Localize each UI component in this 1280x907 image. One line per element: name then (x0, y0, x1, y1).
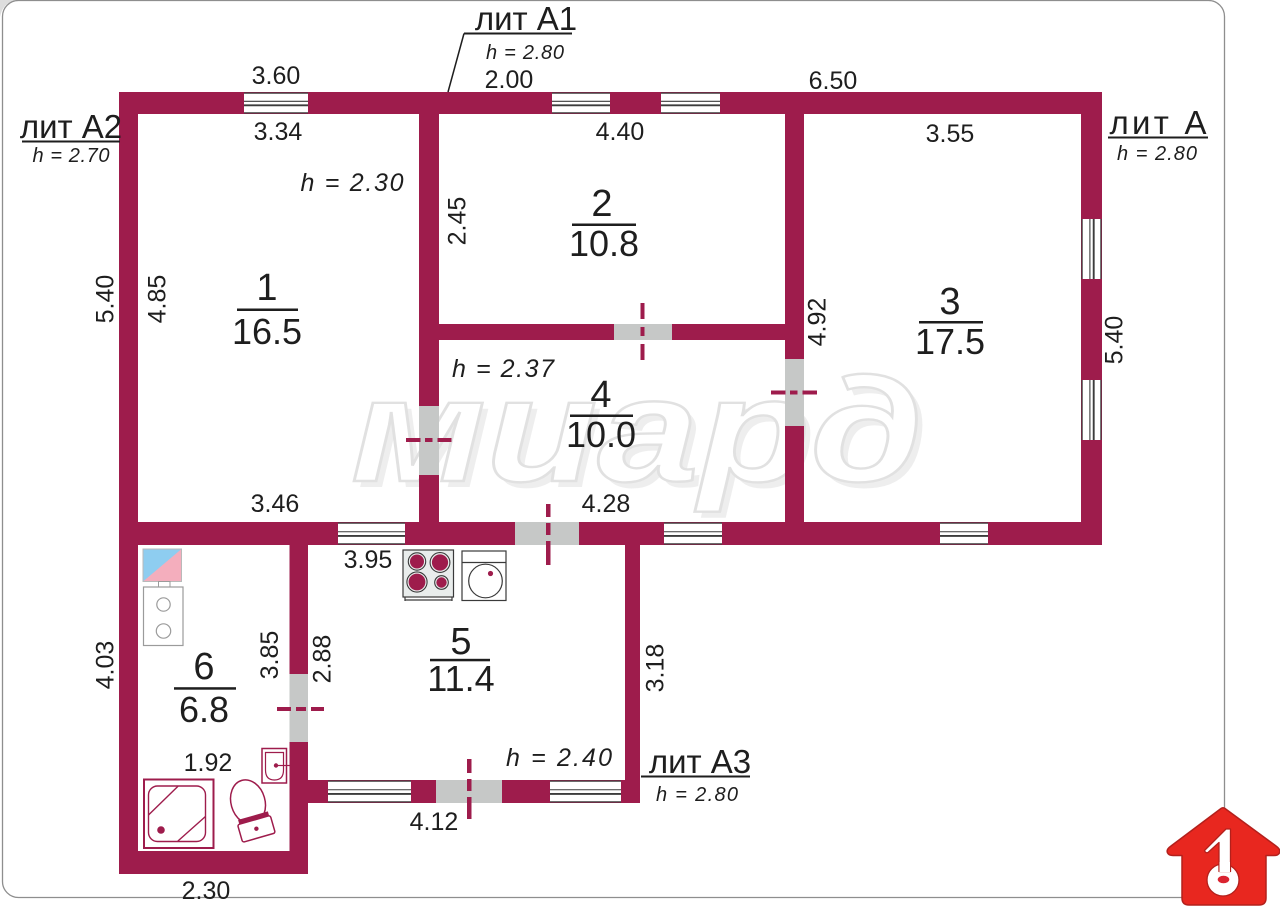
svg-text:4.85: 4.85 (144, 275, 172, 324)
svg-text:5.40: 5.40 (1101, 316, 1129, 365)
svg-text:3.60: 3.60 (252, 62, 301, 90)
svg-text:6.8: 6.8 (179, 689, 229, 730)
svg-text:h = 2.37: h = 2.37 (452, 355, 555, 383)
svg-text:лит А: лит А (1110, 104, 1207, 141)
svg-text:2.45: 2.45 (444, 197, 472, 246)
svg-text:4: 4 (590, 374, 611, 416)
svg-text:4.92: 4.92 (804, 298, 832, 347)
svg-text:6: 6 (193, 646, 214, 688)
svg-text:h = 2.70: h = 2.70 (33, 145, 110, 167)
svg-text:1: 1 (256, 267, 277, 309)
svg-text:3.55: 3.55 (926, 120, 975, 148)
svg-text:h = 2.80: h = 2.80 (486, 42, 564, 64)
svg-text:5: 5 (450, 621, 471, 663)
svg-text:1.92: 1.92 (184, 749, 233, 777)
svg-text:17.5: 17.5 (915, 321, 985, 362)
svg-text:11.4: 11.4 (427, 658, 494, 699)
svg-text:3: 3 (939, 281, 960, 323)
svg-text:10.8: 10.8 (569, 223, 639, 264)
svg-text:4.03: 4.03 (92, 641, 120, 690)
svg-text:3.34: 3.34 (254, 118, 303, 146)
svg-text:3.95: 3.95 (344, 546, 393, 574)
svg-text:10.0: 10.0 (566, 414, 636, 455)
svg-text:5.40: 5.40 (92, 275, 120, 324)
svg-text:2: 2 (591, 183, 612, 225)
svg-text:лит А2: лит А2 (20, 108, 122, 145)
svg-text:16.5: 16.5 (232, 311, 302, 352)
svg-text:4.28: 4.28 (582, 490, 631, 518)
svg-text:2.00: 2.00 (485, 66, 534, 94)
svg-text:лит А1: лит А1 (475, 0, 577, 37)
svg-text:4.40: 4.40 (596, 118, 645, 146)
svg-text:6.50: 6.50 (809, 67, 858, 95)
svg-text:3.85: 3.85 (256, 631, 284, 680)
svg-text:2.30: 2.30 (182, 877, 231, 905)
svg-text:3.46: 3.46 (251, 490, 300, 518)
svg-text:лит А3: лит А3 (649, 743, 751, 780)
svg-text:2.88: 2.88 (309, 635, 337, 684)
svg-text:4.12: 4.12 (410, 808, 459, 836)
svg-text:h = 2.80: h = 2.80 (1117, 143, 1197, 165)
svg-text:3.18: 3.18 (642, 644, 670, 693)
